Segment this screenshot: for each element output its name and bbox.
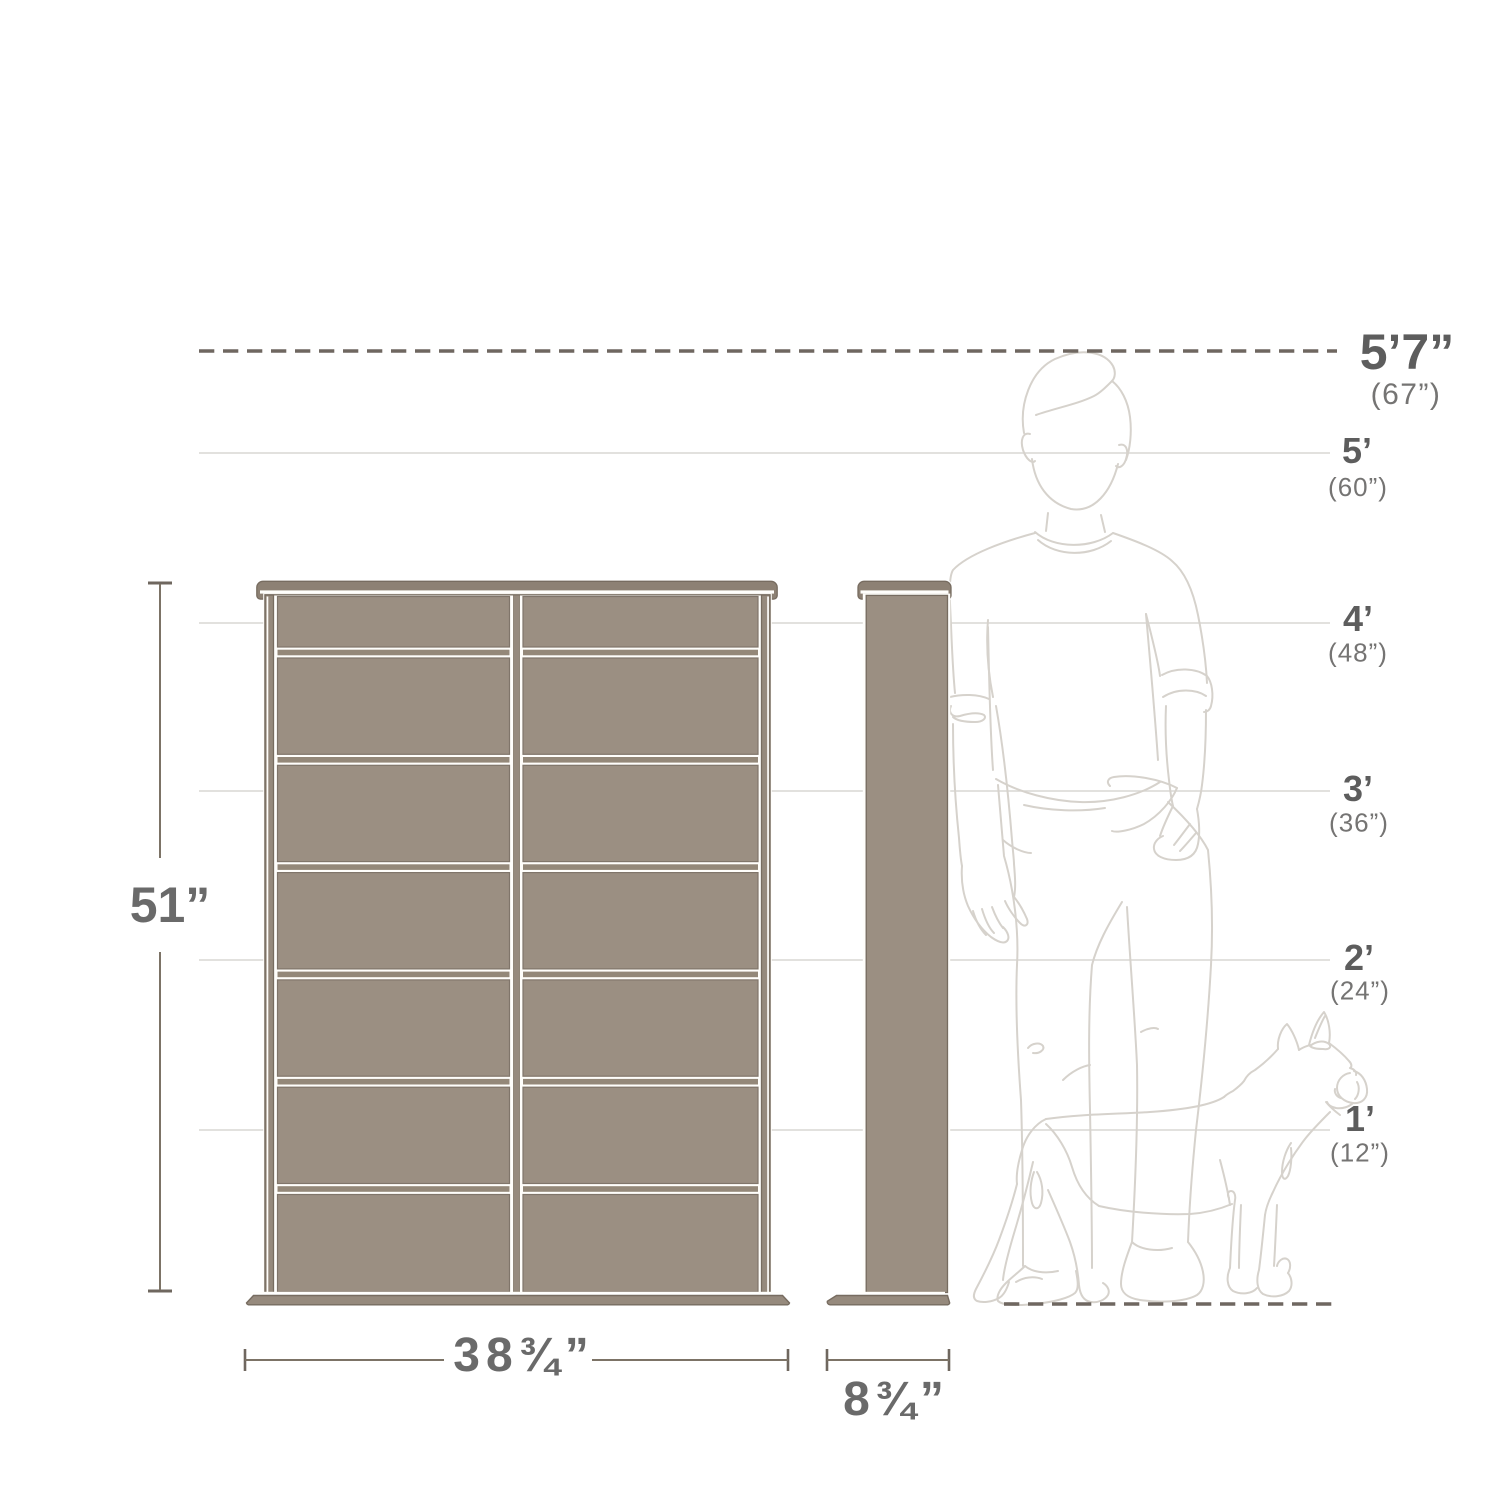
svg-text:4’: 4’ [1343,598,1373,639]
svg-text:5’7”: 5’7” [1360,324,1455,380]
svg-text:5’: 5’ [1342,430,1372,471]
svg-text:2’: 2’ [1344,937,1374,978]
svg-text:8¾”: 8¾” [843,1373,949,1426]
svg-text:38¾”: 38¾” [453,1329,594,1382]
svg-text:(12”): (12”) [1330,1138,1390,1168]
svg-text:(60”): (60”) [1328,472,1388,502]
svg-text:(36”): (36”) [1329,808,1389,838]
svg-text:(24”): (24”) [1330,976,1390,1006]
svg-text:(67”): (67”) [1371,378,1442,411]
svg-text:1’: 1’ [1345,1098,1375,1139]
svg-text:3’: 3’ [1343,768,1373,809]
svg-text:51”: 51” [130,877,211,933]
svg-text:(48”): (48”) [1328,638,1388,668]
